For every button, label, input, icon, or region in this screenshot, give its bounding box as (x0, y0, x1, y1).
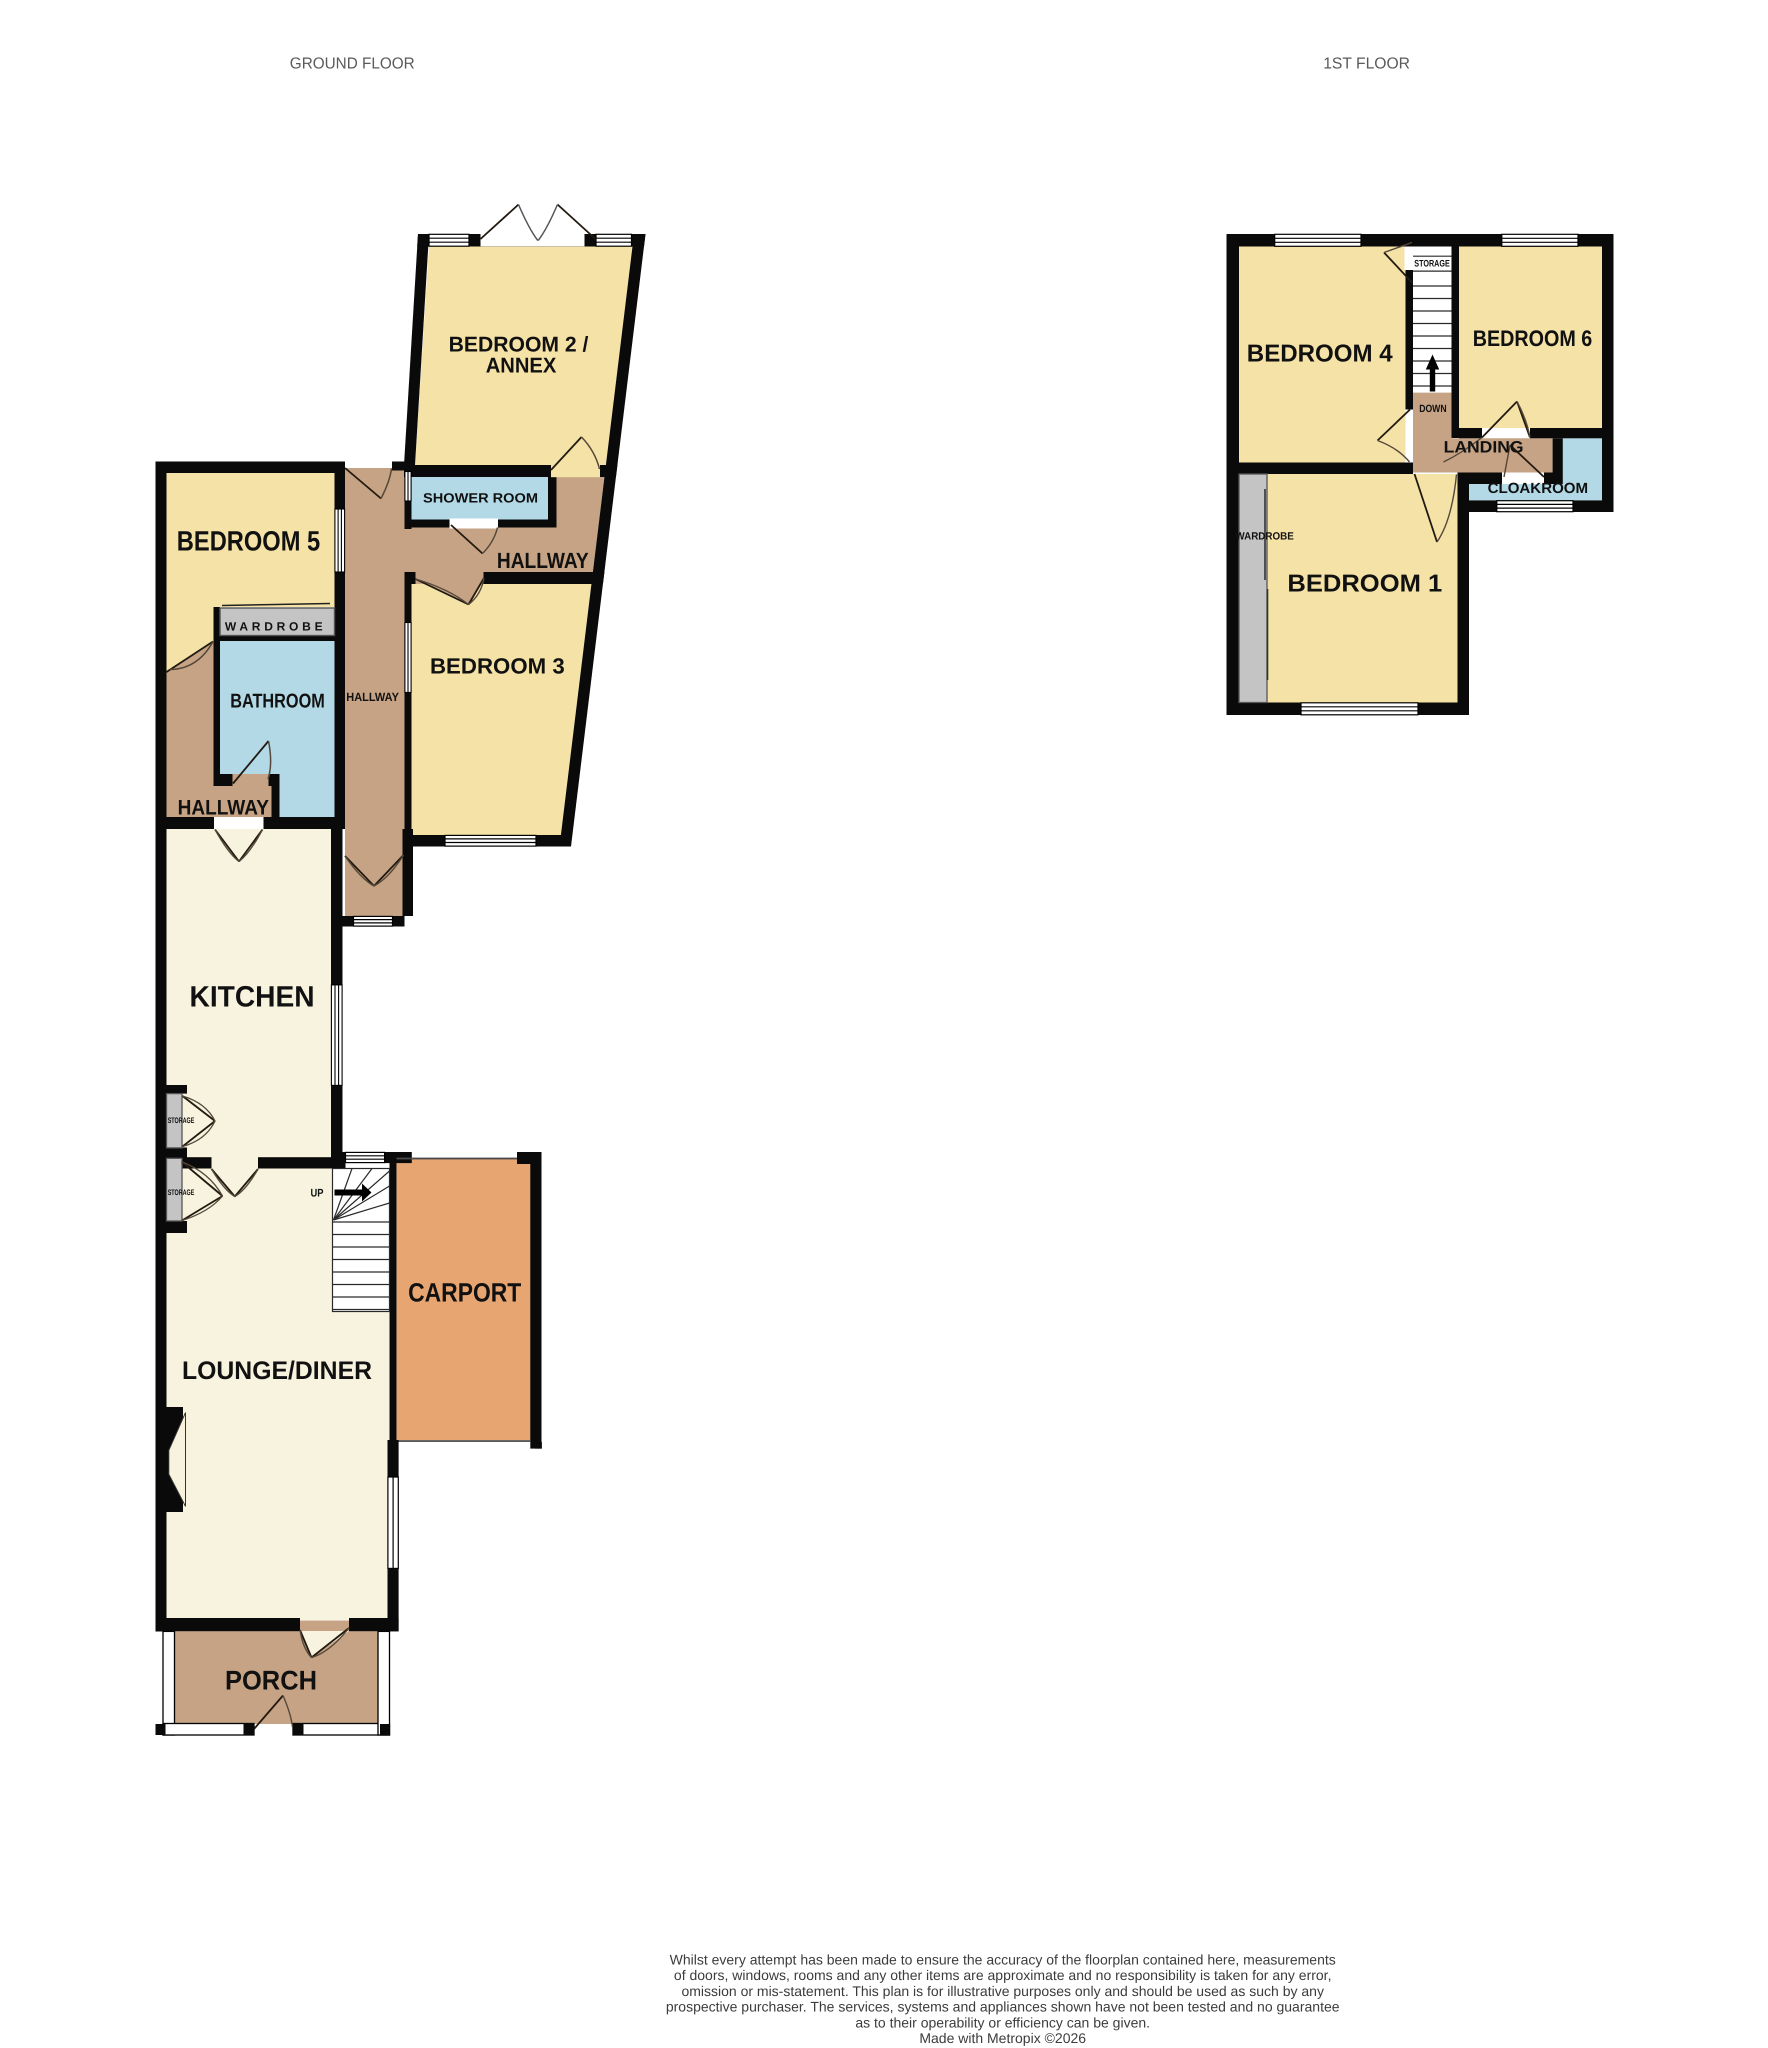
svg-text:STORAGE: STORAGE (168, 1116, 195, 1125)
svg-text:HALLWAY: HALLWAY (346, 690, 399, 704)
svg-text:LANDING: LANDING (1444, 438, 1524, 456)
svg-text:BEDROOM 3: BEDROOM 3 (430, 654, 565, 679)
svg-text:Whilst every attempt has been: Whilst every attempt has been made to en… (670, 1951, 1336, 1967)
svg-text:HALLWAY: HALLWAY (178, 797, 269, 820)
svg-text:CARPORT: CARPORT (408, 1278, 521, 1308)
svg-text:SHOWER ROOM: SHOWER ROOM (423, 491, 538, 506)
svg-text:1ST FLOOR: 1ST FLOOR (1323, 56, 1410, 73)
svg-text:PORCH: PORCH (225, 1666, 317, 1696)
svg-text:KITCHEN: KITCHEN (190, 981, 315, 1014)
svg-text:of doors, windows, rooms and a: of doors, windows, rooms and any other i… (674, 1967, 1332, 1983)
svg-text:BATHROOM: BATHROOM (230, 691, 325, 713)
svg-text:CLOAKROOM: CLOAKROOM (1488, 481, 1589, 497)
svg-text:prospective purchaser. The ser: prospective purchaser. The services, sys… (666, 1999, 1340, 2015)
svg-text:LOUNGE/DINER: LOUNGE/DINER (182, 1357, 372, 1385)
svg-text:UP: UP (311, 1188, 324, 1200)
svg-text:as to their operability or eff: as to their operability or efficiency ca… (855, 2014, 1150, 2030)
svg-text:BEDROOM 1: BEDROOM 1 (1287, 571, 1442, 598)
svg-text:DOWN: DOWN (1419, 403, 1446, 415)
svg-text:BEDROOM 6: BEDROOM 6 (1473, 326, 1593, 351)
svg-text:BEDROOM 4: BEDROOM 4 (1247, 341, 1393, 368)
svg-text:ANNEX: ANNEX (486, 353, 557, 377)
svg-text:WARDROBE: WARDROBE (1235, 531, 1293, 543)
svg-text:BEDROOM 5: BEDROOM 5 (177, 525, 320, 556)
svg-text:GROUND FLOOR: GROUND FLOOR (290, 56, 415, 73)
svg-text:Made with Metropix ©2026: Made with Metropix ©2026 (919, 2030, 1086, 2046)
svg-text:omission or mis-statement. Thi: omission or mis-statement. This plan is … (681, 1983, 1324, 1999)
svg-text:STORAGE: STORAGE (168, 1188, 195, 1197)
svg-text:HALLWAY: HALLWAY (497, 548, 589, 573)
svg-text:STORAGE: STORAGE (1414, 259, 1450, 270)
